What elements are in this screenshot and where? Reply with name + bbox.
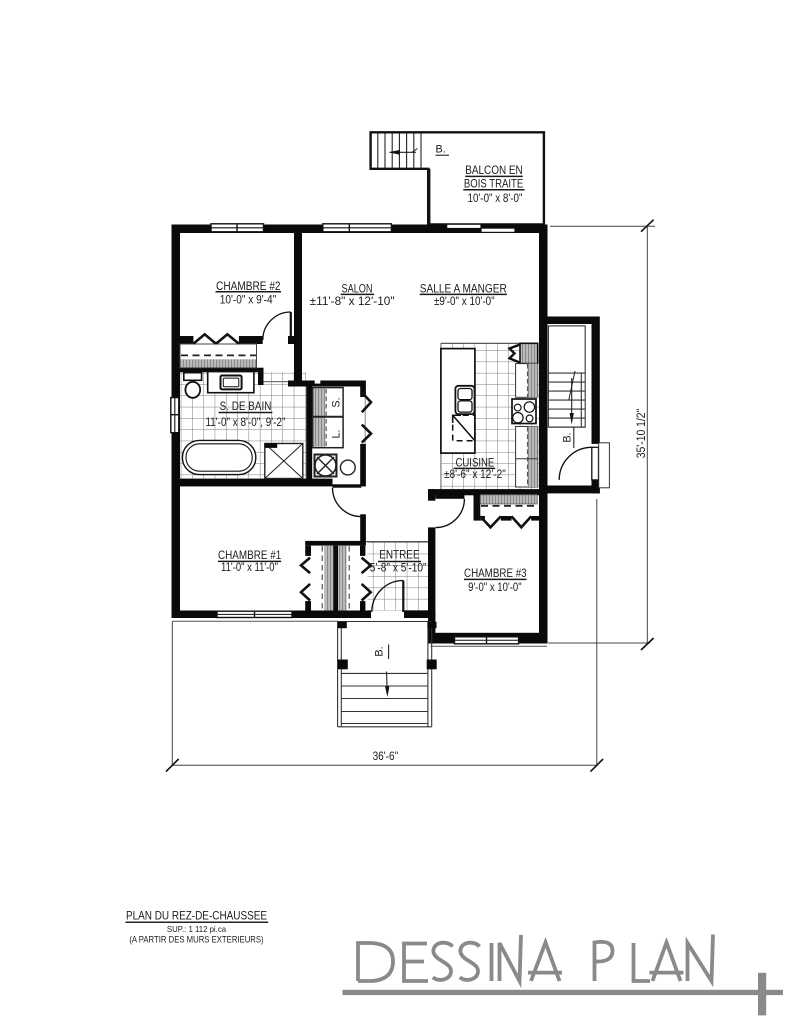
svg-text:11'-0" x 11'-0": 11'-0" x 11'-0" [221,560,278,574]
svg-text:CHAMBRE #3: CHAMBRE #3 [464,566,527,580]
svg-text:B.: B. [562,432,574,442]
svg-text:±8'-6" x 12'-2": ±8'-6" x 12'-2" [444,467,506,481]
svg-text:B.: B. [374,646,386,656]
svg-text:5'-8" x 5'-10": 5'-8" x 5'-10" [370,561,427,575]
svg-text:±9'-0" x 10'-0": ±9'-0" x 10'-0" [434,294,495,308]
svg-text:SUP.: 1 112 pi.ca: SUP.: 1 112 pi.ca [167,924,226,934]
svg-text:B.: B. [436,144,446,156]
svg-text:10'-0" x 8'-0": 10'-0" x 8'-0" [468,191,523,205]
svg-text:(A PARTIR DES MURS EXTERIEURS): (A PARTIR DES MURS EXTERIEURS) [129,934,263,944]
svg-text:PLAN DU REZ-DE-CHAUSSEE: PLAN DU REZ-DE-CHAUSSEE [126,909,267,923]
svg-text:36'-6": 36'-6" [373,749,399,763]
svg-text:ENTREE: ENTREE [379,548,420,562]
svg-text:35'-10 1/2": 35'-10 1/2" [634,409,648,459]
svg-text:L.: L. [331,429,343,438]
svg-text:S. DE BAIN: S. DE BAIN [220,399,272,413]
svg-text:9'-0" x 10'-0": 9'-0" x 10'-0" [468,580,522,594]
svg-text:CHAMBRE #2: CHAMBRE #2 [216,279,281,293]
svg-text:±11'-8" x 12'-10": ±11'-8" x 12'-10" [310,294,395,308]
svg-text:10'-0" x 9'-4": 10'-0" x 9'-4" [220,293,277,307]
svg-text:BALCON EN: BALCON EN [465,163,523,177]
svg-text:S.: S. [331,397,343,407]
svg-text:11'-0" x 8'-0", 9'-2": 11'-0" x 8'-0", 9'-2" [206,415,286,429]
svg-text:BOIS TRAITE: BOIS TRAITE [464,176,524,190]
